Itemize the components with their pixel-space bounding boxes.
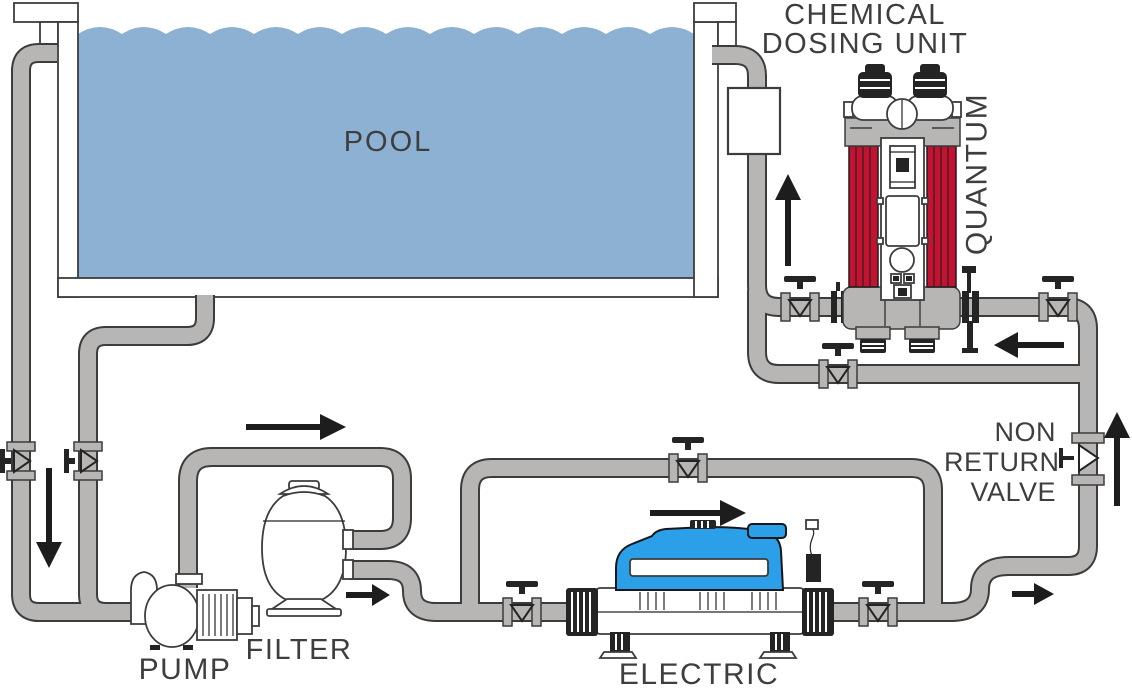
arrow-right-nrv-icon xyxy=(1012,583,1054,605)
pump xyxy=(131,572,259,650)
arrow-up-nrv-icon xyxy=(1104,412,1130,506)
quantum-red-lamp-left xyxy=(849,138,878,287)
electric-heater-label: ELECTRIC HEATER xyxy=(556,659,842,688)
electric-heater xyxy=(566,520,834,658)
quantum-label: QUANTUM xyxy=(961,93,993,255)
non-return-valve-label: NON RETURN VALVE xyxy=(944,417,1056,507)
arrow-right-small-icon xyxy=(346,584,390,606)
quantum-center-column xyxy=(877,138,928,300)
heater-legs xyxy=(600,632,796,658)
chemical-dosing-unit-label: CHEMICAL DOSING UNIT xyxy=(760,1,970,59)
pump-label: PUMP xyxy=(133,654,237,686)
pool-system-diagram: POOL CHEMICAL DOSING UNIT QUANTUM NON RE… xyxy=(0,0,1132,688)
quantum-red-lamp-right xyxy=(927,138,956,287)
quantum-cap-left xyxy=(858,64,892,98)
non-return-valve xyxy=(1059,433,1104,485)
heater-right-coupling xyxy=(802,588,834,636)
heater-knob xyxy=(690,520,716,529)
arrow-down-icon xyxy=(36,468,62,568)
quantum-uv-unit xyxy=(843,64,961,353)
filter xyxy=(262,481,353,616)
chemical-dosing-unit xyxy=(728,88,780,154)
heater-cover-tab xyxy=(748,524,786,538)
heater-sensor xyxy=(806,520,821,582)
arrow-left-quantum-icon xyxy=(994,332,1064,358)
heater-left-coupling xyxy=(566,588,598,636)
filter-label: FILTER xyxy=(243,635,355,665)
heater-label-slot xyxy=(630,559,768,576)
pool-label: POOL xyxy=(338,127,438,157)
quantum-cap-right xyxy=(913,64,947,98)
arrow-up-return-icon xyxy=(775,174,801,266)
arrow-right-icon xyxy=(246,414,346,440)
